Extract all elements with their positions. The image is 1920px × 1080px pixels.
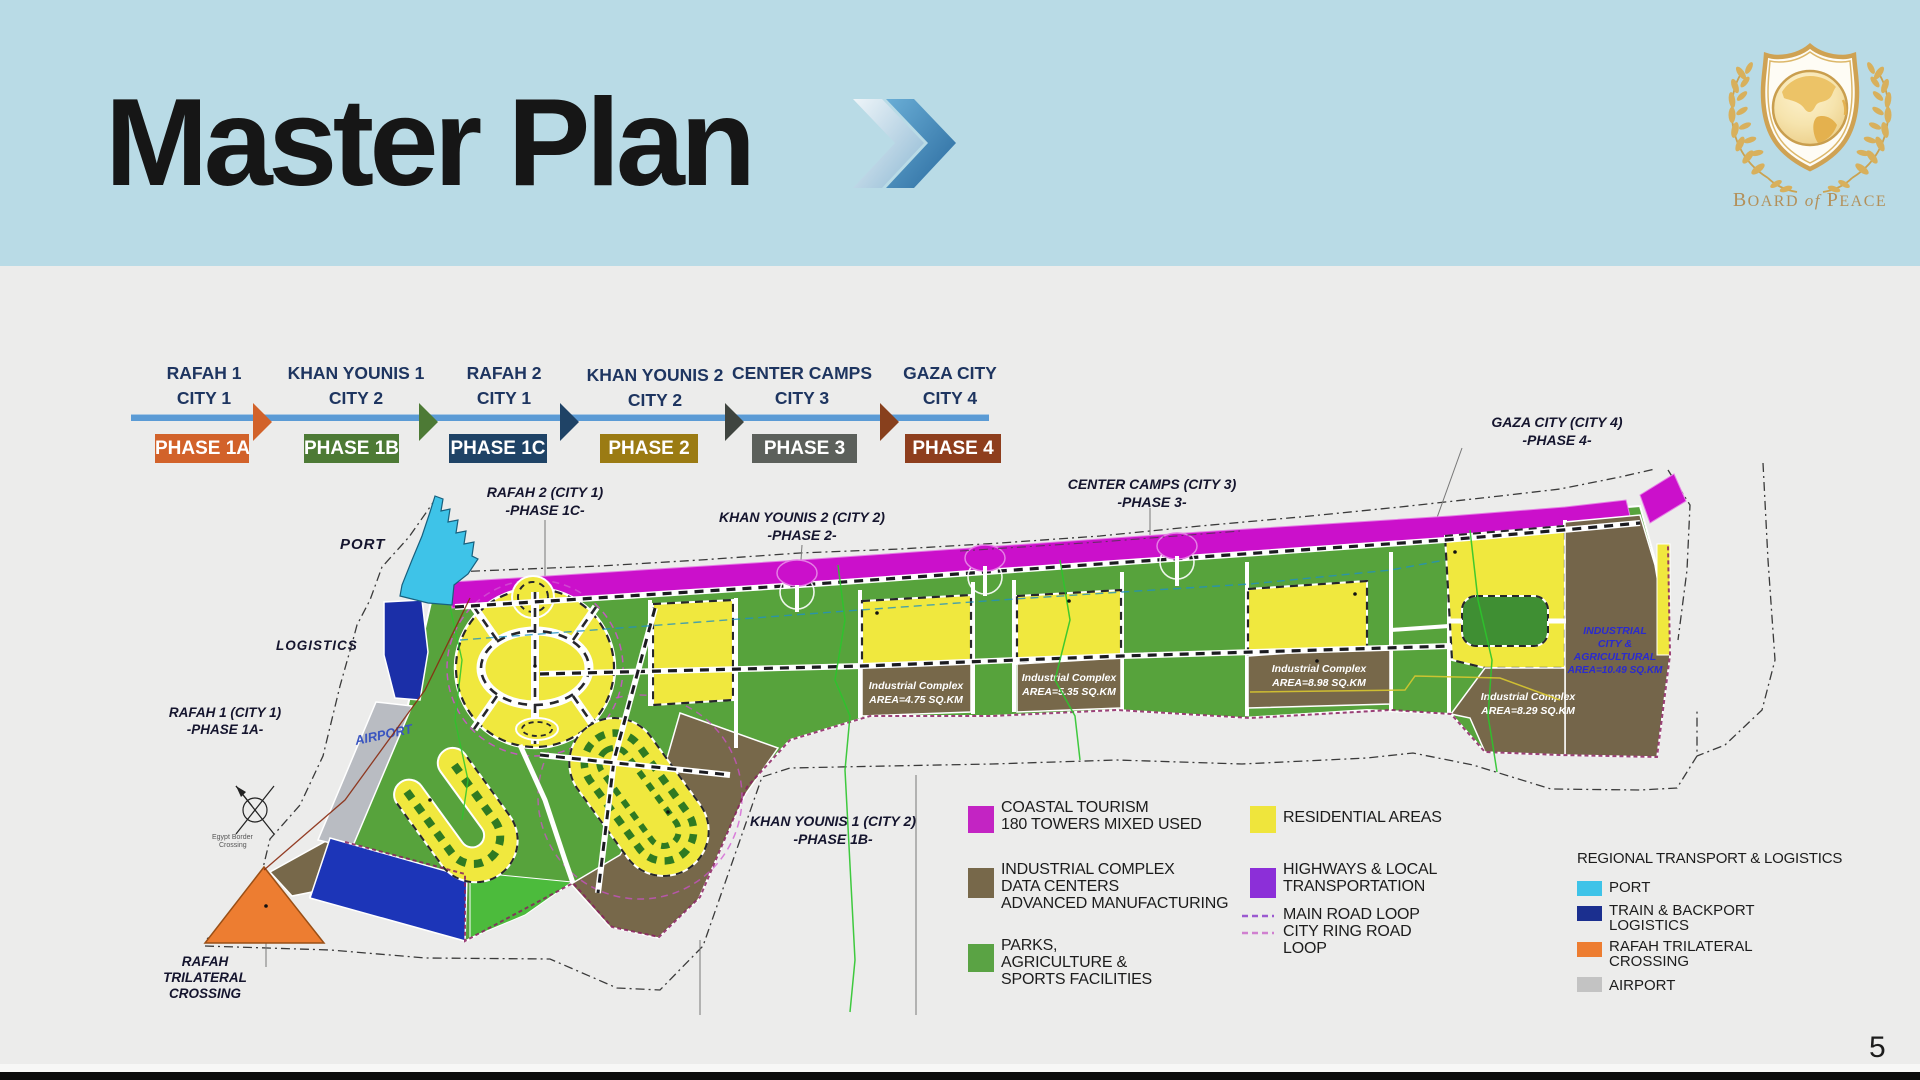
svg-text:Egypt Border: Egypt Border — [212, 834, 254, 841]
svg-text:-PHASE 1A-: -PHASE 1A- — [187, 722, 264, 737]
svg-text:Industrial Complex: Industrial Complex — [1481, 691, 1577, 703]
svg-text:Industrial Complex: Industrial Complex — [1022, 672, 1118, 684]
svg-text:INDUSTRIAL: INDUSTRIAL — [1583, 625, 1647, 637]
svg-text:-PHASE 3-: -PHASE 3- — [1117, 494, 1187, 510]
svg-text:KHAN YOUNIS 2 (CITY 2): KHAN YOUNIS 2 (CITY 2) — [719, 509, 885, 525]
svg-text:-PHASE 4-: -PHASE 4- — [1522, 432, 1592, 448]
svg-text:CROSSING: CROSSING — [169, 986, 242, 1001]
svg-text:-PHASE 1C-: -PHASE 1C- — [505, 502, 585, 518]
svg-text:-PHASE 2-: -PHASE 2- — [767, 527, 837, 543]
svg-text:CENTER CAMPS (CITY 3): CENTER CAMPS (CITY 3) — [1068, 476, 1237, 492]
svg-text:RAFAH 2 (CITY 1): RAFAH 2 (CITY 1) — [487, 484, 604, 500]
svg-text:RAFAH: RAFAH — [182, 954, 229, 969]
svg-text:GAZA CITY (CITY 4): GAZA CITY (CITY 4) — [1491, 414, 1623, 430]
svg-text:AREA=5.35 SQ.KM: AREA=5.35 SQ.KM — [1021, 686, 1116, 698]
svg-text:AGRICULTURAL: AGRICULTURAL — [1573, 651, 1657, 663]
svg-text:CITY &: CITY & — [1598, 638, 1632, 650]
svg-text:-PHASE 1B-: -PHASE 1B- — [793, 831, 873, 847]
svg-text:KHAN YOUNIS 1 (CITY 2): KHAN YOUNIS 1 (CITY 2) — [750, 813, 916, 829]
svg-text:Industrial Complex: Industrial Complex — [1272, 663, 1368, 675]
svg-text:LOGISTICS: LOGISTICS — [276, 638, 358, 653]
svg-text:AREA=10.49 SQ.KM: AREA=10.49 SQ.KM — [1567, 665, 1663, 676]
svg-text:AREA=4.75 SQ.KM: AREA=4.75 SQ.KM — [868, 694, 963, 706]
svg-text:TRILATERAL: TRILATERAL — [163, 970, 247, 985]
svg-text:PORT: PORT — [340, 536, 386, 553]
svg-text:RAFAH 1 (CITY 1): RAFAH 1 (CITY 1) — [169, 705, 282, 720]
svg-text:Industrial Complex: Industrial Complex — [869, 680, 965, 692]
svg-text:AREA=8.98 SQ.KM: AREA=8.98 SQ.KM — [1271, 677, 1366, 689]
svg-text:AREA=8.29 SQ.KM: AREA=8.29 SQ.KM — [1480, 705, 1575, 717]
svg-text:Crossing: Crossing — [219, 842, 247, 849]
